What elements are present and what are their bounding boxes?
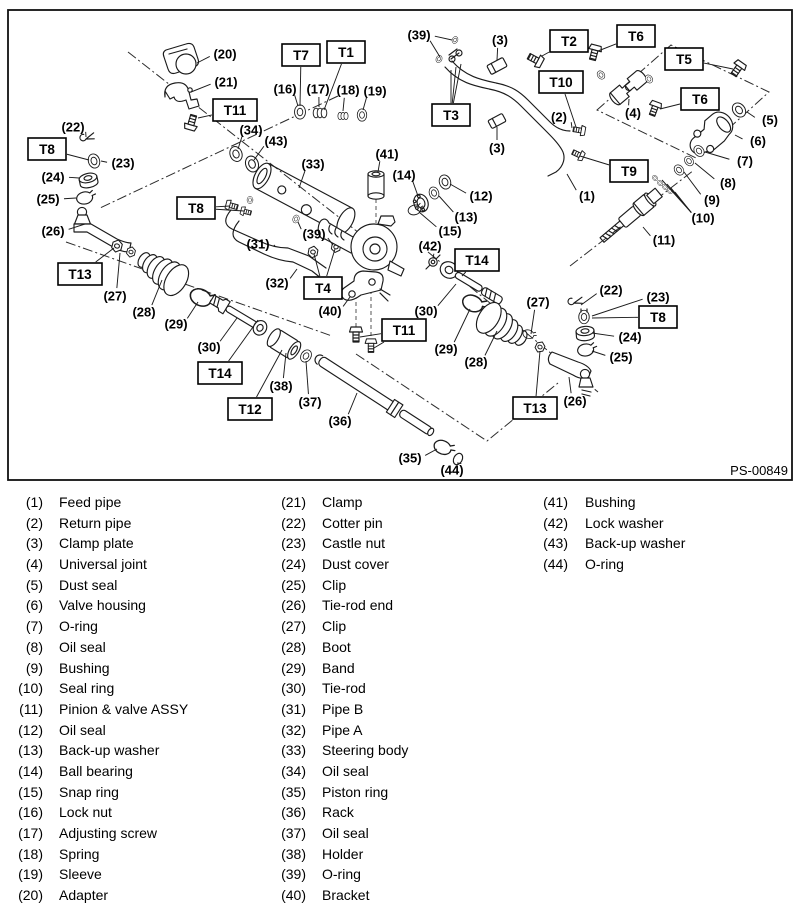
legend-item-number: (2)	[12, 513, 43, 534]
tie-rod-left	[208, 293, 269, 338]
part-number-label: (44)	[440, 463, 463, 478]
legend-item: (39)O-ring	[268, 864, 530, 885]
dust-cover-right	[576, 326, 595, 342]
torque-label: T4	[315, 281, 331, 296]
part-number-label: (20)	[213, 47, 236, 62]
legend-item: (2)Return pipe	[12, 513, 264, 534]
bushing-part	[368, 171, 384, 199]
part-number-label: (22)	[599, 283, 622, 298]
oil-seal-body	[228, 145, 244, 163]
torque-label: T11	[224, 103, 247, 118]
legend-item-name: Universal joint	[59, 554, 147, 575]
torque-label: T7	[293, 48, 309, 63]
legend-item-name: Cotter pin	[322, 513, 383, 534]
service-manual-page: { "figure": { "code": "PS-00849", "part_…	[0, 0, 801, 912]
torque-label: T2	[561, 34, 577, 49]
legend-item-name: Adapter	[59, 885, 108, 906]
bushing-valve	[672, 163, 686, 177]
spring-part	[338, 112, 348, 119]
leader-line	[295, 95, 298, 106]
torque-label: T12	[238, 402, 261, 417]
part-number-label: (14)	[392, 168, 415, 183]
part-number-label: (15)	[438, 224, 461, 239]
legend-item-number: (23)	[268, 533, 306, 554]
part-number-label: (7)	[737, 154, 753, 169]
part-number-label: (32)	[265, 276, 288, 291]
part-number-label: (19)	[363, 84, 386, 99]
legend-item-number: (44)	[538, 554, 568, 575]
leader-line	[450, 184, 466, 193]
leader-line	[571, 122, 572, 128]
legend-item-number: (40)	[268, 885, 306, 906]
leader-line	[300, 67, 301, 106]
dust-seal-part	[730, 100, 749, 119]
leader-line	[454, 309, 470, 342]
legend-item-number: (29)	[268, 658, 306, 679]
legend-item-name: Tie-rod	[322, 678, 366, 699]
leader-line	[705, 152, 729, 159]
legend-item-number: (3)	[12, 533, 43, 554]
oil-seal-upper	[437, 173, 452, 190]
pipe-fitting-t10	[572, 124, 586, 136]
legend-item-name: Bushing	[585, 492, 636, 513]
seal-ring-1	[651, 174, 659, 182]
legend-item-name: Oil seal	[59, 637, 106, 658]
part-number-label: (17)	[306, 82, 329, 97]
diagram-artwork	[74, 36, 748, 467]
legend-item-name: Holder	[322, 844, 363, 865]
legend-item: (30)Tie-rod	[268, 678, 530, 699]
legend-item: (12)Oil seal	[12, 720, 264, 741]
part-number-label: (42)	[418, 239, 441, 254]
leader-line	[290, 269, 297, 278]
leader-line	[592, 299, 643, 316]
leader-line	[298, 222, 301, 229]
clamp-part	[165, 83, 199, 109]
part-number-label: (30)	[414, 304, 437, 319]
legend-item: (43)Back-up washer	[538, 533, 788, 554]
legend-item-name: Clamp	[322, 492, 362, 513]
legend-item-name: O-ring	[322, 864, 361, 885]
sleeve-part	[357, 109, 367, 121]
leader-line	[378, 161, 380, 172]
part-number-label: (26)	[41, 224, 64, 239]
legend-item-name: Feed pipe	[59, 492, 121, 513]
legend-item-number: (15)	[12, 782, 43, 803]
torque-label: T1	[338, 45, 354, 60]
leader-line	[299, 171, 305, 188]
legend-item-name: Return pipe	[59, 513, 131, 534]
part-number-label: (5)	[762, 113, 778, 128]
legend-item-name: Adjusting screw	[59, 823, 157, 844]
part-number-label: (18)	[336, 83, 359, 98]
o-ring-pipe-1	[292, 214, 301, 224]
legend-item: (1)Feed pipe	[12, 492, 264, 513]
clamp-plate-2	[488, 113, 506, 128]
legend-item: (36)Rack	[268, 802, 530, 823]
legend-column-3: (41)Bushing(42)Lock washer(43)Back-up wa…	[538, 492, 788, 575]
gear-housing	[318, 216, 404, 276]
legend-item-name: Bushing	[59, 658, 110, 679]
legend-item: (28)Boot	[268, 637, 530, 658]
legend-item-name: Castle nut	[322, 533, 385, 554]
legend-item-number: (27)	[268, 616, 306, 637]
legend-item-number: (38)	[268, 844, 306, 865]
legend-item-name: Oil seal	[59, 720, 106, 741]
legend-item-number: (18)	[12, 844, 43, 865]
legend-column-1: (1)Feed pipe(2)Return pipe(3)Clamp plate…	[12, 492, 264, 906]
clamp-bolt-t2	[526, 50, 545, 69]
part-number-label: (41)	[375, 147, 398, 162]
legend-item: (44)O-ring	[538, 554, 788, 575]
legend-item: (38)Holder	[268, 844, 530, 865]
leader-line	[567, 174, 576, 190]
legend-item-name: Band	[322, 658, 355, 679]
legend-item-name: Oil seal	[322, 761, 369, 782]
pipe-fitting-t9	[570, 147, 585, 161]
leader-line	[343, 98, 344, 111]
legend-item-number: (30)	[268, 678, 306, 699]
leader-line	[581, 294, 597, 305]
torque-label: T5	[676, 52, 692, 67]
valve-housing-part	[683, 107, 740, 161]
legend-item: (41)Bushing	[538, 492, 788, 513]
legend-item-number: (4)	[12, 554, 43, 575]
part-number-label: (11)	[653, 233, 675, 248]
legend-item: (29)Band	[268, 658, 530, 679]
legend-item-number: (22)	[268, 513, 306, 534]
leader-line	[695, 163, 714, 179]
legend-item-name: Ball bearing	[59, 761, 133, 782]
legend-item-name: Piston ring	[322, 782, 388, 803]
part-number-label: (33)	[301, 157, 324, 172]
part-number-label: (39)	[302, 227, 325, 242]
legend-item-number: (13)	[12, 740, 43, 761]
leader-line	[438, 284, 456, 306]
torque-label: T6	[692, 92, 708, 107]
universal-joint-part	[608, 69, 649, 107]
legend-item-number: (9)	[12, 658, 43, 679]
part-number-label: (23)	[111, 156, 134, 171]
legend-item: (31)Pipe B	[268, 699, 530, 720]
leader-line	[592, 317, 638, 318]
pipe-bolt-2	[240, 206, 252, 218]
part-number-label: (23)	[646, 290, 669, 305]
bracket-bolt	[183, 113, 200, 131]
leader-line	[254, 146, 264, 160]
legend-item-number: (24)	[268, 554, 306, 575]
legend-item: (34)Oil seal	[268, 761, 530, 782]
part-number-label: (9)	[704, 193, 720, 208]
legend-item: (17)Adjusting screw	[12, 823, 264, 844]
leader-line	[327, 249, 335, 276]
leader-line	[435, 36, 452, 40]
leader-line	[197, 56, 210, 63]
part-number-label: (12)	[469, 189, 492, 204]
legend-item: (22)Cotter pin	[268, 513, 530, 534]
legend-item-name: Tie-rod end	[322, 595, 393, 616]
part-number-label: (24)	[618, 330, 641, 345]
leader-line	[419, 212, 436, 227]
legend-item: (11)Pinion & valve ASSY	[12, 699, 264, 720]
legend-item: (26)Tie-rod end	[268, 595, 530, 616]
part-number-label: (37)	[298, 395, 321, 410]
legend-item-number: (36)	[268, 802, 306, 823]
legend-item-name: Spring	[59, 844, 99, 865]
part-number-label: (1)	[579, 189, 595, 204]
legend-item: (42)Lock washer	[538, 513, 788, 534]
legend-item: (9)Bushing	[12, 658, 264, 679]
part-number-label: (4)	[625, 106, 641, 121]
legend-item-number: (20)	[12, 885, 43, 906]
piston-ring-part	[432, 438, 457, 459]
legend-item: (10)Seal ring	[12, 678, 264, 699]
dust-cover-left	[78, 172, 99, 190]
legend-item-name: Steering body	[322, 740, 408, 761]
leader-line	[747, 112, 755, 117]
torque-label: T8	[650, 310, 666, 325]
legend-item: (40)Bracket	[268, 885, 530, 906]
legend-item-number: (5)	[12, 575, 43, 596]
legend-item: (32)Pipe A	[268, 720, 530, 741]
leader-line	[413, 182, 418, 196]
legend-item-name: Pipe B	[322, 699, 363, 720]
pipe-washer	[247, 196, 253, 204]
legend-item-number: (43)	[538, 533, 568, 554]
part-number-label: (27)	[526, 295, 549, 310]
steering-body-part	[249, 160, 358, 236]
legend-item-number: (1)	[12, 492, 43, 513]
part-number-label: (3)	[489, 141, 505, 156]
legend-item-name: Rack	[322, 802, 354, 823]
legend-item-name: Boot	[322, 637, 351, 658]
legend-item-name: Clip	[322, 616, 346, 637]
leader-line	[592, 333, 614, 336]
o-ring-top-1	[451, 36, 459, 45]
joint-washer-1	[596, 69, 607, 80]
torque-label: T6	[628, 29, 644, 44]
legend-item: (24)Dust cover	[268, 554, 530, 575]
part-number-label: (40)	[318, 304, 341, 319]
torque-label: T9	[621, 164, 637, 179]
bracket-part	[341, 271, 390, 301]
legend-column-2: (21)Clamp(22)Cotter pin(23)Castle nut(24…	[268, 492, 530, 906]
leader-line	[580, 156, 609, 165]
leader-line	[531, 310, 535, 334]
torque-label: T3	[443, 108, 459, 123]
leader-line	[101, 161, 107, 162]
adapter-part	[163, 43, 198, 74]
part-number-label: (24)	[41, 170, 64, 185]
leader-line	[497, 48, 498, 60]
legend-item: (3)Clamp plate	[12, 533, 264, 554]
legend-item: (16)Lock nut	[12, 802, 264, 823]
legend-item-number: (39)	[268, 864, 306, 885]
leader-line	[425, 449, 437, 455]
leader-line	[117, 253, 120, 288]
leader-line	[662, 180, 691, 213]
legend-item-name: Clip	[322, 575, 346, 596]
leader-line	[96, 248, 114, 262]
legend-item-number: (17)	[12, 823, 43, 844]
legend-item-number: (8)	[12, 637, 43, 658]
legend-item-name: Clamp plate	[59, 533, 134, 554]
leader-line	[542, 52, 549, 56]
leader-line	[191, 84, 211, 92]
legend-item: (15)Snap ring	[12, 782, 264, 803]
part-number-label: (27)	[103, 289, 126, 304]
legend-item: (8)Oil seal	[12, 637, 264, 658]
part-number-label: (6)	[750, 134, 766, 149]
castle-nut-left	[86, 152, 101, 169]
part-number-label: (28)	[464, 355, 487, 370]
legend-item: (20)Adapter	[12, 885, 264, 906]
part-number-label: (8)	[720, 176, 736, 191]
leader-line	[439, 196, 453, 212]
part-number-label: (22)	[61, 120, 84, 135]
leader-line	[306, 361, 308, 394]
legend-item: (33)Steering body	[268, 740, 530, 761]
part-number-label: (25)	[609, 350, 632, 365]
pipe-eyes	[449, 49, 462, 62]
adjusting-screw-part	[313, 108, 327, 118]
part-number-label: (16)	[273, 82, 296, 97]
leader-line	[569, 377, 571, 393]
legend-item-number: (7)	[12, 616, 43, 637]
part-number-label: (13)	[454, 210, 477, 225]
leader-line	[220, 318, 237, 341]
legend-item-name: Lock nut	[59, 802, 112, 823]
legend-item-name: Pinion & valve ASSY	[59, 699, 188, 720]
legend-item-number: (25)	[268, 575, 306, 596]
legend-item-name: Back-up washer	[59, 740, 159, 761]
leader-line	[69, 177, 79, 178]
leader-line	[67, 154, 89, 160]
legend-item: (6)Valve housing	[12, 595, 264, 616]
part-number-label: (35)	[398, 451, 421, 466]
leader-line	[363, 98, 366, 110]
clip-right-2	[577, 342, 598, 357]
leader-line	[360, 334, 381, 337]
part-number-label: (36)	[328, 414, 351, 429]
legend-item-name: Valve housing	[59, 595, 146, 616]
legend-item-name: Oil seal	[322, 823, 369, 844]
leader-line	[348, 393, 357, 414]
legend-item: (7)O-ring	[12, 616, 264, 637]
torque-label: T11	[393, 323, 416, 338]
legend-item-name: Snap ring	[59, 782, 119, 803]
legend-item-number: (28)	[268, 637, 306, 658]
torque-label: T13	[523, 401, 547, 416]
legend-item-number: (34)	[268, 761, 306, 782]
lock-nut-part	[295, 105, 306, 119]
torque-label: T13	[68, 267, 92, 282]
leader-line	[660, 104, 680, 109]
clip-left	[76, 190, 97, 205]
legend-item-number: (32)	[268, 720, 306, 741]
part-number-label: (43)	[264, 134, 287, 149]
part-number-label: (3)	[492, 33, 508, 48]
part-number-label: (29)	[164, 317, 187, 332]
leader-line	[430, 41, 440, 57]
legend-item-name: O-ring	[585, 554, 624, 575]
legend-item-number: (12)	[12, 720, 43, 741]
legend-item-number: (42)	[538, 513, 568, 534]
legend-item: (37)Oil seal	[268, 823, 530, 844]
torque-label: T14	[208, 366, 232, 381]
backup-washer-upper	[428, 186, 441, 201]
leader-line	[684, 172, 701, 194]
legend-item-name: Seal ring	[59, 678, 114, 699]
legend-item: (5)Dust seal	[12, 575, 264, 596]
boot-right	[471, 298, 534, 355]
legend-item-number: (41)	[538, 492, 568, 513]
part-number-label: (38)	[269, 379, 292, 394]
legend-item-name: Back-up washer	[585, 533, 685, 554]
leader-line	[64, 198, 76, 199]
legend-item-name: Sleeve	[59, 864, 102, 885]
housing-bolt-1	[350, 327, 363, 342]
legend-item: (23)Castle nut	[268, 533, 530, 554]
legend-item-number: (6)	[12, 595, 43, 616]
legend-item-number: (16)	[12, 802, 43, 823]
legend-item: (4)Universal joint	[12, 554, 264, 575]
part-number-label: (29)	[434, 342, 457, 357]
figure-code: PS-00849	[730, 463, 788, 478]
legend-item-number: (10)	[12, 678, 43, 699]
legend-item-name: Lock washer	[585, 513, 664, 534]
legend-item: (19)Sleeve	[12, 864, 264, 885]
torque-label: T14	[465, 253, 489, 268]
part-number-label: (2)	[551, 110, 567, 125]
part-number-label: (34)	[239, 123, 262, 138]
legend-item-number: (19)	[12, 864, 43, 885]
holder-part	[265, 327, 304, 361]
part-number-label: (10)	[691, 211, 714, 226]
legend-item: (21)Clamp	[268, 492, 530, 513]
leader-line	[735, 135, 743, 139]
part-number-label: (31)	[246, 237, 269, 252]
torque-label: T8	[39, 142, 55, 157]
legend-item-name: Pipe A	[322, 720, 362, 741]
exploded-parts-diagram: (20)(21)(16)(17)(18)(19)(22)(23)(24)(25)…	[0, 0, 801, 490]
leader-line	[187, 302, 198, 318]
legend-item-number: (11)	[12, 699, 43, 720]
legend-item-number: (31)	[268, 699, 306, 720]
legend-item-name: Bracket	[322, 885, 369, 906]
leader-lines	[64, 36, 755, 463]
legend-item: (13)Back-up washer	[12, 740, 264, 761]
leader-line	[536, 351, 540, 396]
legend-item-number: (37)	[268, 823, 306, 844]
part-number-label: (21)	[214, 75, 237, 90]
legend-item-name: O-ring	[59, 616, 98, 637]
part-number-label: (25)	[36, 192, 59, 207]
castle-nut-right	[579, 310, 590, 324]
part-number-label: (28)	[132, 305, 155, 320]
leader-line	[643, 227, 650, 236]
legend-item: (14)Ball bearing	[12, 761, 264, 782]
torque-label: T10	[549, 75, 572, 90]
legend-item: (27)Clip	[268, 616, 530, 637]
leader-line	[229, 320, 258, 361]
leader-line	[592, 351, 605, 355]
legend-item-number: (35)	[268, 782, 306, 803]
part-number-label: (30)	[197, 340, 220, 355]
legend-item: (25)Clip	[268, 575, 530, 596]
housing-bolt-2	[365, 339, 377, 353]
legend-item: (35)Piston ring	[268, 782, 530, 803]
